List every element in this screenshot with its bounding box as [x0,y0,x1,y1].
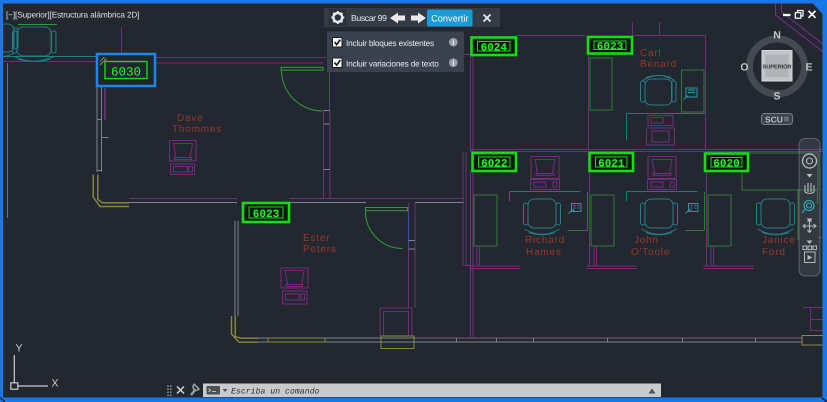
svg-text:[−][Superior][Estructura alámb: [−][Superior][Estructura alámbrica 2D] [6,11,139,20]
svg-text:6030: 6030 [111,66,141,80]
svg-text:6023: 6023 [597,42,624,54]
svg-text:X: X [51,378,58,390]
svg-text:Y: Y [15,343,22,355]
svg-text:Richard: Richard [525,235,565,246]
svg-text:Escriba un comando: Escriba un comando [231,388,320,397]
svg-text:Benard: Benard [640,59,677,70]
svg-text:6024: 6024 [481,43,508,55]
svg-text:Thommes: Thommes [172,124,222,135]
svg-text:Ford: Ford [762,247,786,258]
svg-text:Buscar 99: Buscar 99 [351,13,387,23]
svg-text:6020: 6020 [713,159,739,171]
svg-text:Janice: Janice [762,235,796,246]
svg-text:6022: 6022 [481,159,507,171]
svg-text:John: John [634,235,659,246]
svg-text:Incluir variaciones de texto: Incluir variaciones de texto [346,58,439,68]
svg-text:N: N [773,30,781,42]
svg-text:O'Toole: O'Toole [631,247,670,258]
svg-text:O: O [740,62,748,74]
svg-text:E: E [805,62,812,74]
svg-text:i: i [452,39,454,47]
svg-text:Incluir bloques existentes: Incluir bloques existentes [346,38,434,48]
svg-text:Ester: Ester [303,233,330,244]
svg-text:Peters: Peters [303,244,337,255]
svg-text:Carl: Carl [640,48,662,59]
svg-text:Convertir: Convertir [431,13,468,23]
svg-text:6021: 6021 [598,159,625,171]
svg-text:S: S [773,91,780,103]
svg-text:Hames: Hames [526,247,562,258]
svg-text:SCU: SCU [765,114,783,124]
svg-text:6023: 6023 [253,209,280,221]
svg-text:i: i [452,60,454,68]
svg-text:SUPERIOR: SUPERIOR [763,64,792,70]
svg-text:Dave: Dave [177,113,204,124]
